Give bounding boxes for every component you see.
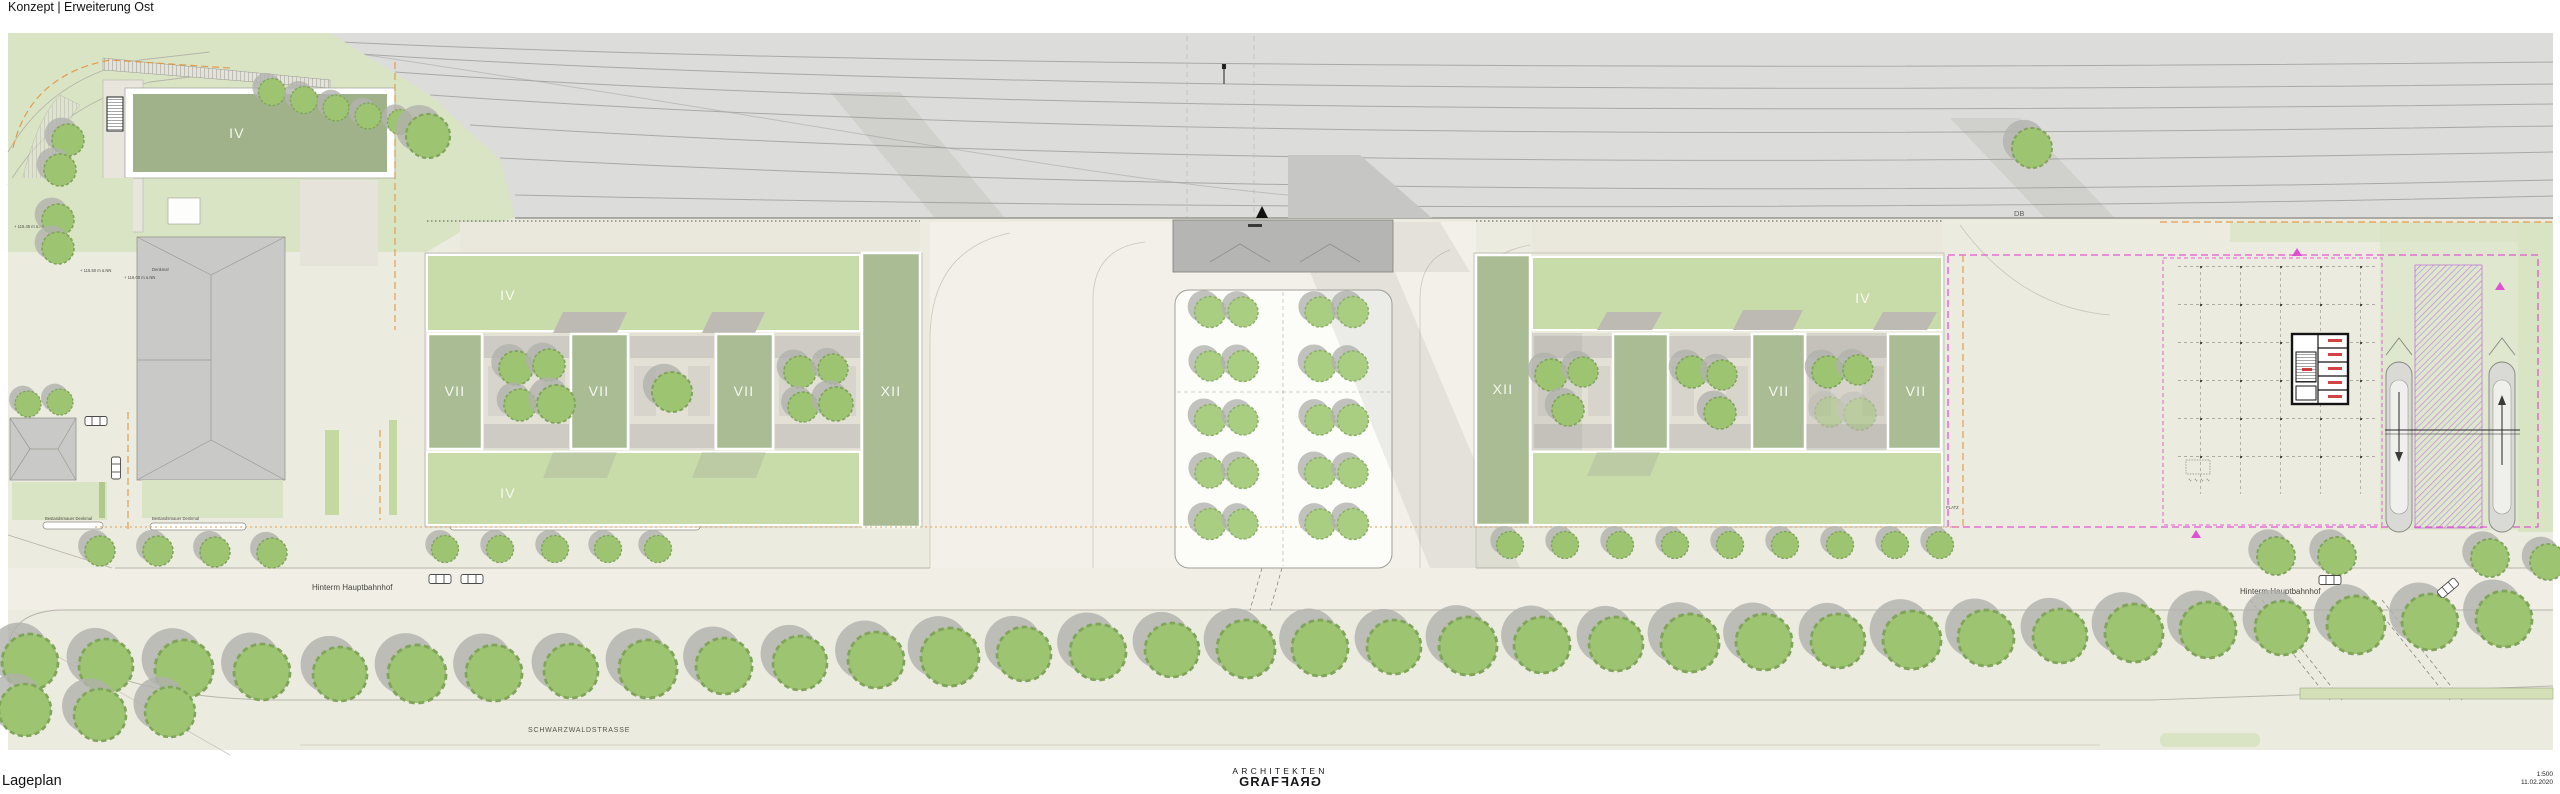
- scale-label: 1:500: [2521, 771, 2553, 779]
- drawing-title: Lageplan: [2, 773, 62, 789]
- architects-logo: ARCHITEKTEN GRAFGRAF: [1230, 766, 1330, 788]
- hedge: [99, 482, 105, 518]
- wall-label: Bestandsmauer Denkmal: [152, 516, 199, 521]
- block-label: XII: [881, 383, 902, 399]
- logo-word: GRAF: [1239, 776, 1280, 788]
- shed: [168, 198, 200, 224]
- deck-label: IV: [500, 287, 516, 303]
- logo-wordmark: GRAFGRAF: [1230, 776, 1330, 788]
- hedge-strip: [2300, 688, 2553, 699]
- green-deck-iv-south: [427, 452, 860, 525]
- block-label: VII: [445, 383, 466, 399]
- elevation-label: + 116.00 m ü.NN: [124, 275, 155, 280]
- page-title: Konzept | Erweiterung Ost: [8, 0, 154, 14]
- denkmal-label: Denkmal: [152, 267, 169, 272]
- garage-ramp-out: [2489, 338, 2515, 532]
- hedge: [389, 420, 397, 515]
- sheet-meta: 1:500 11.02.2020: [2521, 771, 2553, 787]
- lawn: [142, 480, 283, 518]
- block-label: VII: [1906, 383, 1927, 399]
- lawn: [12, 482, 107, 520]
- block-label: VII: [734, 383, 755, 399]
- hedge: [325, 430, 339, 515]
- stair-core-plan: [2292, 334, 2348, 404]
- street-label: Hinterm Hauptbahnhof: [312, 583, 393, 592]
- block: [1613, 334, 1668, 449]
- rail-crossing-structure: [1173, 220, 1393, 272]
- elevation-label: + 115.50 m ü.NN: [80, 268, 111, 273]
- platz-label: PLATZ: [1946, 505, 1959, 510]
- site-plan: DB IV: [0, 0, 2560, 794]
- logo-word-mirrored: GRAF: [1280, 776, 1321, 788]
- green-island: [2160, 733, 2260, 747]
- deck-label: IV: [1855, 290, 1871, 306]
- denkmal-building: [137, 237, 285, 480]
- railway-label: DB: [2014, 209, 2024, 218]
- wall-label: Bestandsmauer Denkmal: [45, 516, 92, 521]
- block-label: VII: [1769, 383, 1790, 399]
- truck: [112, 457, 121, 479]
- railway-area: DB: [330, 33, 2553, 218]
- stair-core: [107, 97, 123, 131]
- block-label: VII: [589, 383, 610, 399]
- denkmal-building-west: [10, 418, 76, 480]
- building-label: IV: [229, 125, 245, 141]
- green-deck-iv-north: [427, 255, 860, 331]
- street-label: SCHWARZWALDSTRASSE: [528, 727, 630, 734]
- hatched-zone: [2415, 265, 2482, 528]
- block-label: XII: [1493, 381, 1514, 397]
- date-label: 11.02.2020: [2521, 779, 2553, 787]
- deck-label: IV: [500, 485, 516, 501]
- garage-ramp-in: [2386, 338, 2412, 532]
- paved-path: [300, 180, 378, 266]
